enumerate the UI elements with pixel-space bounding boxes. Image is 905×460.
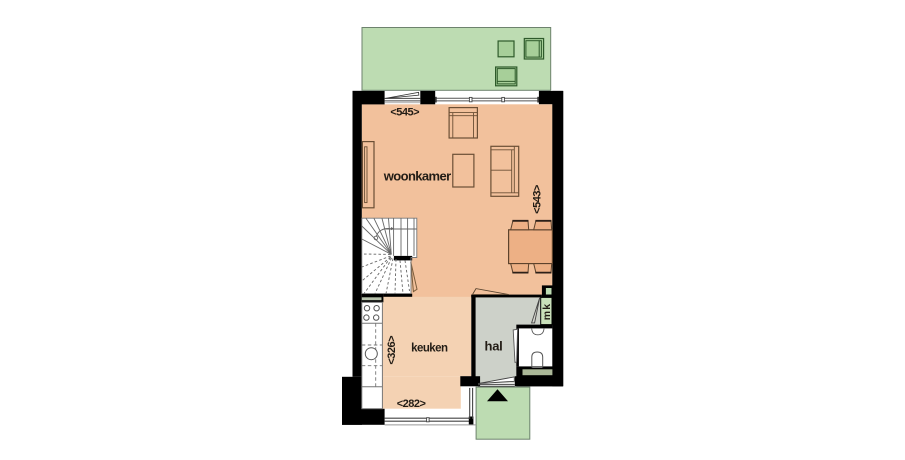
svg-text:keuken: keuken bbox=[411, 343, 448, 355]
svg-text:woonkamer: woonkamer bbox=[383, 169, 451, 184]
svg-text:<282>: <282> bbox=[397, 398, 426, 410]
svg-text:mk: mk bbox=[541, 303, 553, 321]
svg-text:hal: hal bbox=[485, 338, 503, 353]
svg-text:<543>: <543> bbox=[532, 185, 544, 214]
svg-text:<545>: <545> bbox=[390, 107, 419, 119]
svg-text:<326>: <326> bbox=[386, 336, 398, 365]
